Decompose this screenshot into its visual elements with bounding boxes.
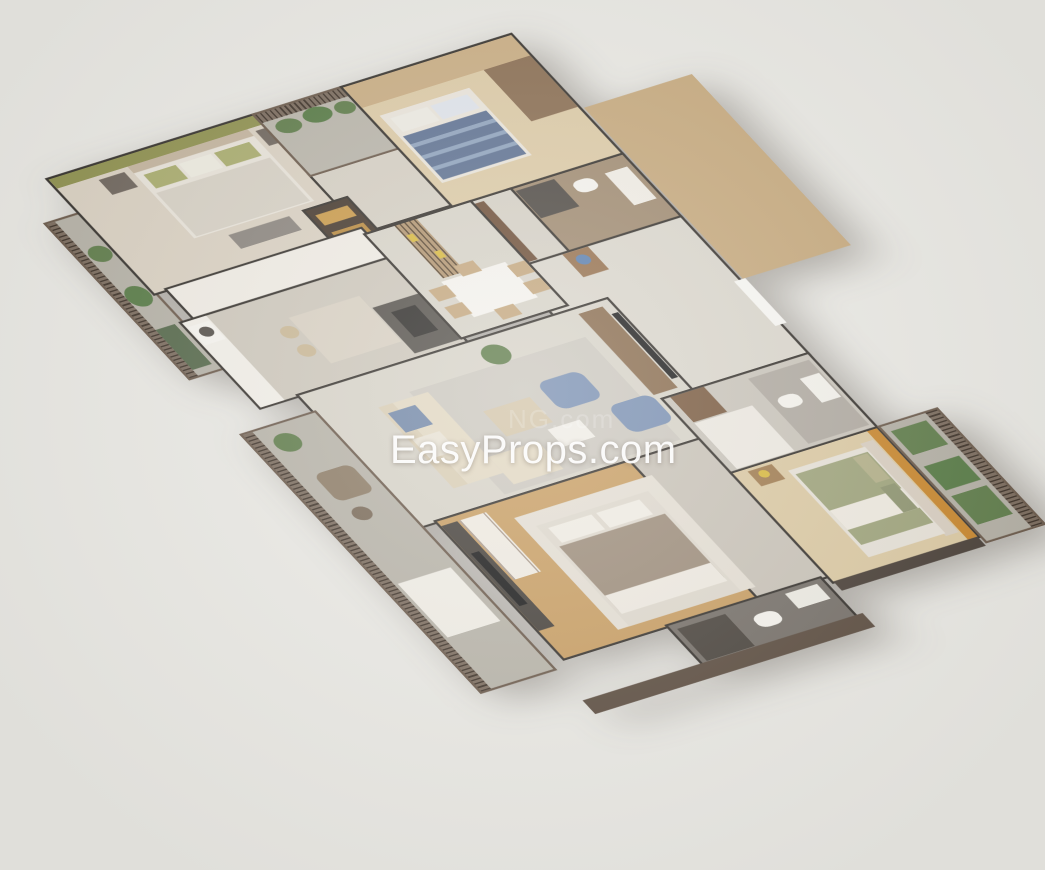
- slat-partition: [394, 219, 465, 278]
- toilet: [570, 176, 601, 194]
- armchair: [313, 463, 375, 502]
- front-door: [734, 278, 787, 326]
- toilet: [750, 609, 786, 629]
- shelf-glassware: [315, 205, 357, 225]
- plant: [268, 430, 308, 455]
- nightstand: [99, 172, 138, 195]
- floor-plan-render: NG.com EasyProps.com: [0, 0, 1045, 870]
- plant: [271, 116, 307, 136]
- vanity: [785, 584, 831, 609]
- floor-plan: [15, 15, 1045, 726]
- side-table: [347, 504, 376, 522]
- watermark-text: EasyProps.com: [390, 428, 677, 473]
- daybed: [398, 567, 501, 637]
- tall-cabinet: [484, 56, 578, 122]
